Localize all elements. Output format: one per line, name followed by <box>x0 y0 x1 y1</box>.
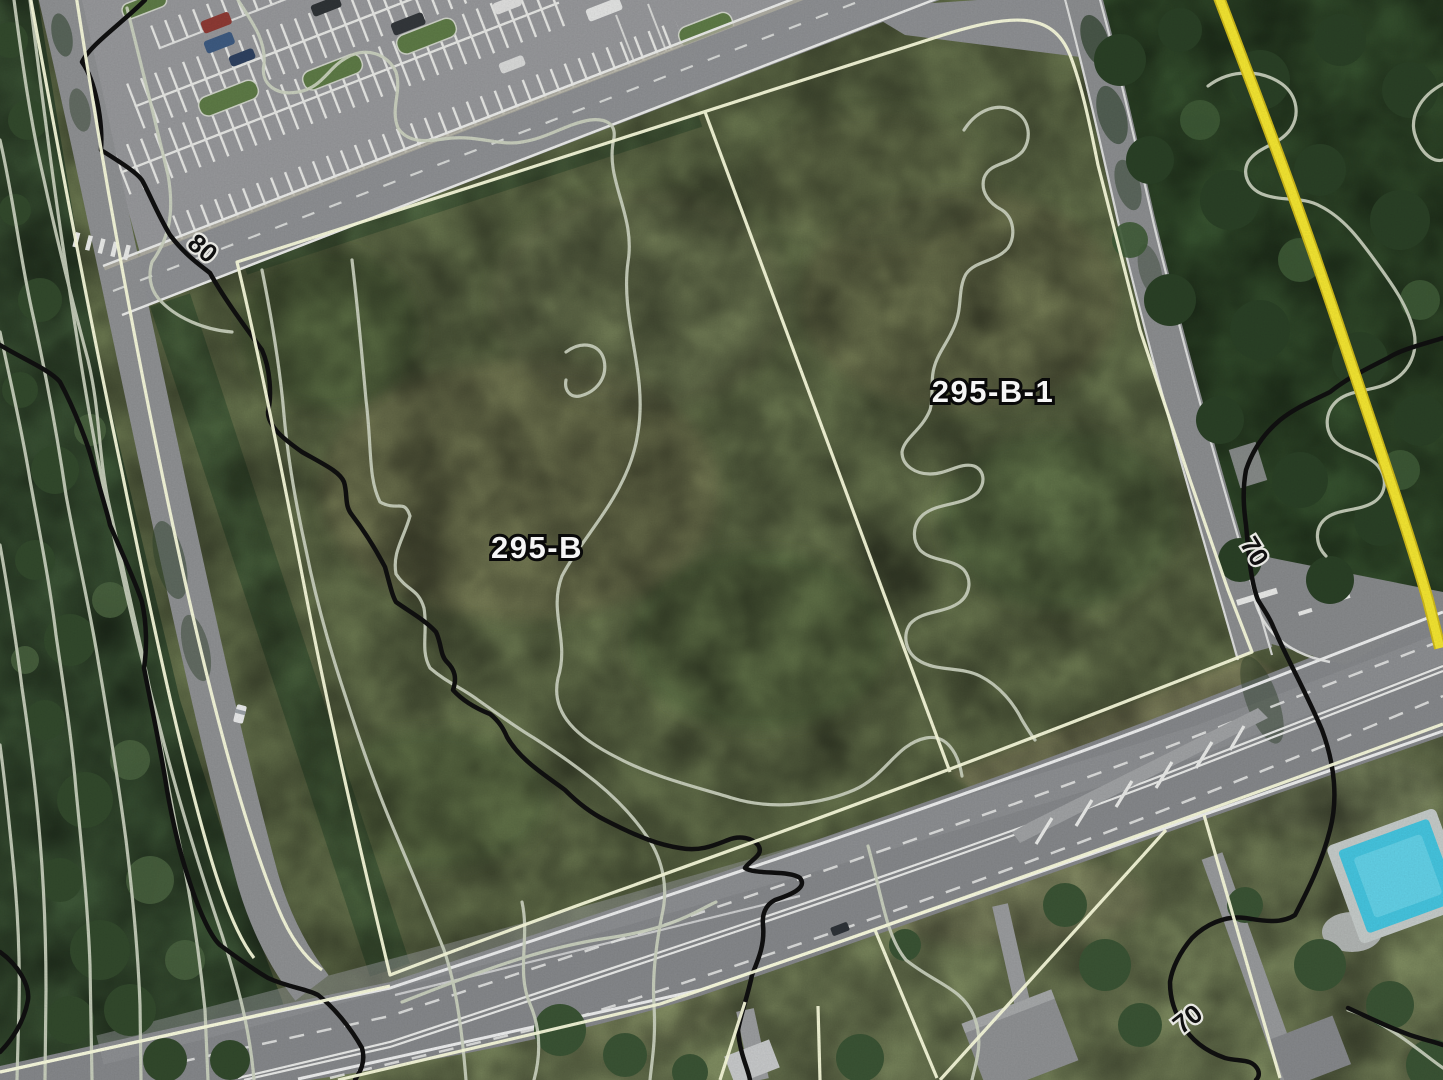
parcel-295-b-label: 295-B <box>491 530 583 565</box>
lot-line <box>818 1006 820 1080</box>
map-canvas[interactable]: 295-B 295-B-1 80 70 70 <box>0 0 1443 1080</box>
parcel-295-b-1-label: 295-B-1 <box>932 374 1055 409</box>
